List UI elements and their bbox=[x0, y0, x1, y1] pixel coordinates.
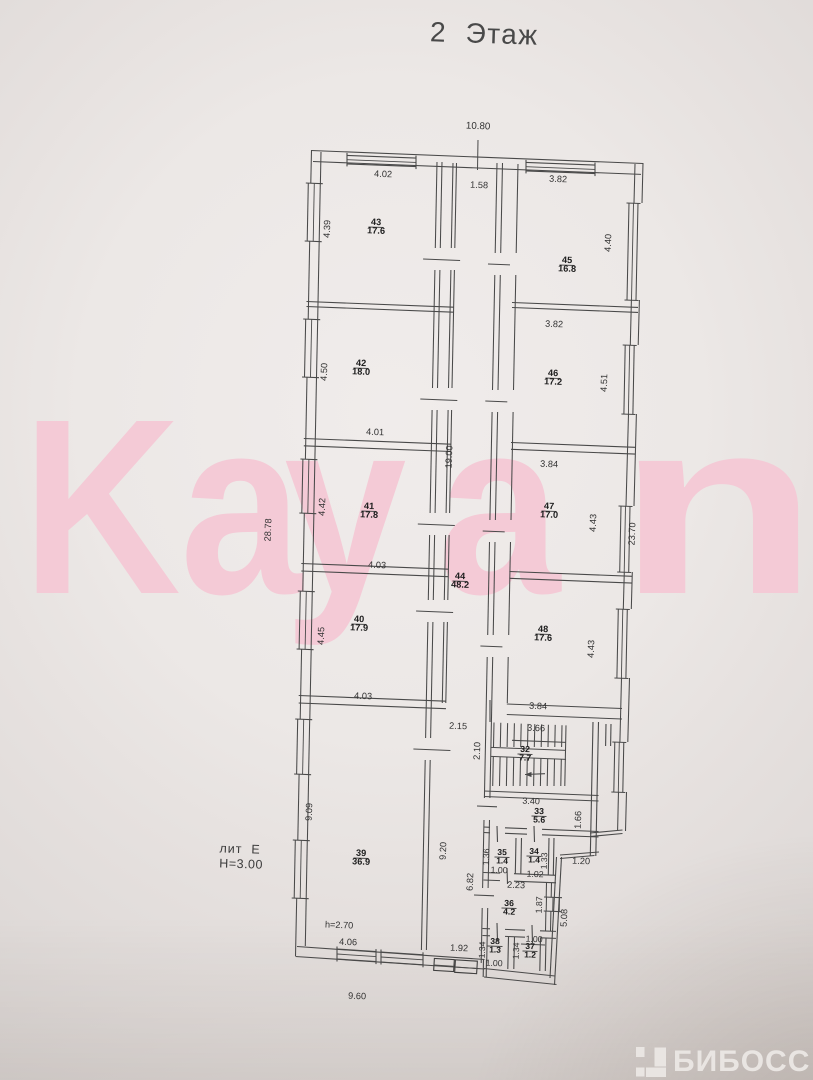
svg-text:1.00: 1.00 bbox=[525, 934, 543, 945]
svg-text:1.92: 1.92 bbox=[450, 943, 468, 954]
svg-text:1.87: 1.87 bbox=[534, 896, 545, 914]
svg-text:28.78: 28.78 bbox=[263, 518, 274, 541]
svg-text:1.20: 1.20 bbox=[572, 856, 590, 867]
svg-text:19.00: 19.00 bbox=[444, 445, 455, 468]
svg-text:3.84: 3.84 bbox=[540, 459, 558, 470]
svg-text:9.20: 9.20 bbox=[438, 842, 449, 860]
svg-text:17.8: 17.8 bbox=[360, 509, 378, 520]
svg-text:3.82: 3.82 bbox=[545, 319, 563, 330]
svg-text:7.7: 7.7 bbox=[519, 752, 532, 762]
svg-text:1.00: 1.00 bbox=[485, 958, 503, 969]
svg-text:2.15: 2.15 bbox=[449, 721, 467, 732]
svg-text:4.51: 4.51 bbox=[599, 374, 610, 392]
svg-text:6.82: 6.82 bbox=[465, 873, 476, 891]
svg-text:4.43: 4.43 bbox=[586, 640, 597, 658]
svg-text:9.60: 9.60 bbox=[348, 991, 366, 1002]
svg-text:5.6: 5.6 bbox=[533, 814, 546, 824]
svg-text:Н=3.00: Н=3.00 bbox=[219, 856, 263, 871]
svg-text:4.01: 4.01 bbox=[366, 427, 384, 438]
svg-text:5.08: 5.08 bbox=[559, 909, 570, 927]
svg-text:1.02: 1.02 bbox=[526, 869, 544, 880]
svg-text:1.36: 1.36 bbox=[481, 848, 492, 865]
svg-text:2.10: 2.10 bbox=[472, 742, 483, 760]
svg-text:h=2.70: h=2.70 bbox=[325, 919, 354, 930]
svg-text:10.80: 10.80 bbox=[466, 121, 491, 133]
svg-text:48.2: 48.2 bbox=[451, 579, 469, 590]
svg-text:4.03: 4.03 bbox=[354, 691, 372, 702]
svg-text:17.9: 17.9 bbox=[350, 622, 368, 633]
svg-text:1.34: 1.34 bbox=[477, 941, 488, 958]
svg-text:1.33: 1.33 bbox=[539, 852, 550, 869]
svg-text:1.2: 1.2 bbox=[524, 949, 536, 959]
svg-text:3.82: 3.82 bbox=[549, 174, 567, 185]
svg-text:3.66: 3.66 bbox=[527, 723, 545, 734]
svg-text:17.0: 17.0 bbox=[540, 509, 558, 520]
svg-text:1.34: 1.34 bbox=[511, 942, 522, 959]
svg-text:лит Е: лит Е bbox=[219, 841, 261, 856]
svg-text:17.2: 17.2 bbox=[544, 376, 562, 387]
svg-text:4.06: 4.06 bbox=[339, 937, 357, 948]
svg-text:1.3: 1.3 bbox=[489, 944, 501, 954]
svg-text:23.70: 23.70 bbox=[627, 522, 638, 545]
svg-text:16.8: 16.8 bbox=[558, 263, 576, 274]
svg-text:4.42: 4.42 bbox=[317, 498, 328, 516]
svg-text:4.40: 4.40 bbox=[603, 234, 614, 252]
svg-text:1.00: 1.00 bbox=[490, 865, 508, 876]
svg-text:3.40: 3.40 bbox=[522, 796, 540, 807]
svg-text:18.0: 18.0 bbox=[352, 366, 370, 377]
svg-text:4.39: 4.39 bbox=[322, 220, 333, 238]
svg-text:4.03: 4.03 bbox=[368, 560, 386, 571]
svg-text:4.50: 4.50 bbox=[319, 363, 330, 381]
svg-text:4.43: 4.43 bbox=[588, 514, 599, 532]
svg-text:17.6: 17.6 bbox=[367, 225, 385, 236]
svg-text:1.66: 1.66 bbox=[573, 811, 584, 829]
svg-text:3.84: 3.84 bbox=[529, 701, 547, 712]
svg-text:2.23: 2.23 bbox=[507, 880, 525, 891]
svg-text:36.9: 36.9 bbox=[352, 856, 370, 867]
svg-text:4.2: 4.2 bbox=[503, 906, 516, 916]
svg-text:1.58: 1.58 bbox=[470, 180, 488, 191]
svg-text:17.6: 17.6 bbox=[534, 632, 552, 643]
svg-text:4.02: 4.02 bbox=[374, 169, 392, 180]
svg-text:2 Этаж: 2 Этаж bbox=[430, 16, 539, 50]
svg-text:9.09: 9.09 bbox=[304, 803, 315, 821]
svg-text:4.45: 4.45 bbox=[316, 627, 327, 645]
